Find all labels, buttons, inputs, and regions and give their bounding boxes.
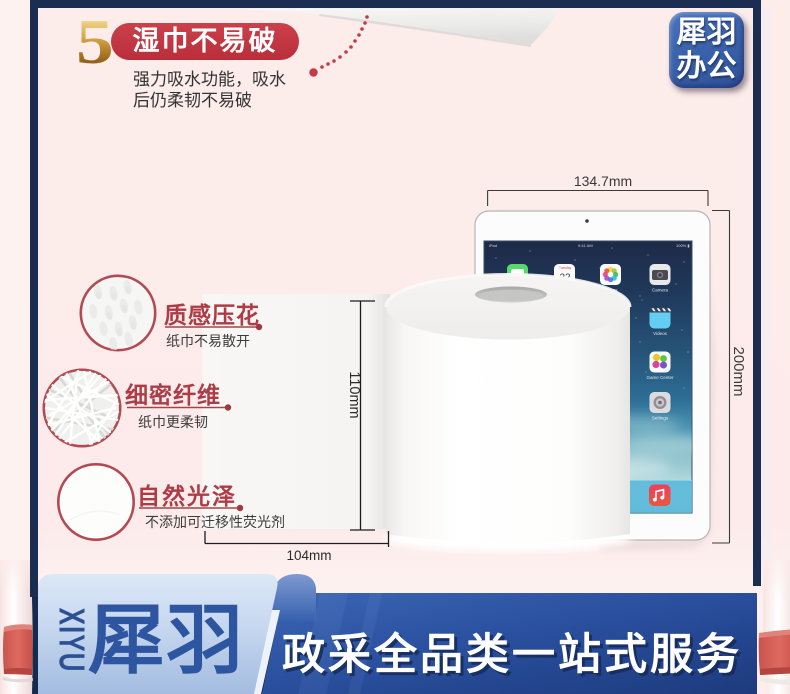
svg-text:Settings: Settings (652, 416, 669, 421)
svg-text:9:41 AM: 9:41 AM (578, 243, 593, 248)
svg-text:Tuesday: Tuesday (559, 266, 572, 270)
svg-text:Game Center: Game Center (646, 375, 674, 380)
svg-text:Camera: Camera (652, 288, 669, 293)
svg-text:110mm: 110mm (346, 371, 362, 418)
svg-text:iPad: iPad (489, 243, 497, 248)
svg-text:134.7mm: 134.7mm (574, 173, 632, 189)
svg-text:200mm: 200mm (730, 346, 747, 396)
svg-text:Videos: Videos (653, 331, 667, 336)
svg-text:100% ▮: 100% ▮ (676, 243, 690, 248)
